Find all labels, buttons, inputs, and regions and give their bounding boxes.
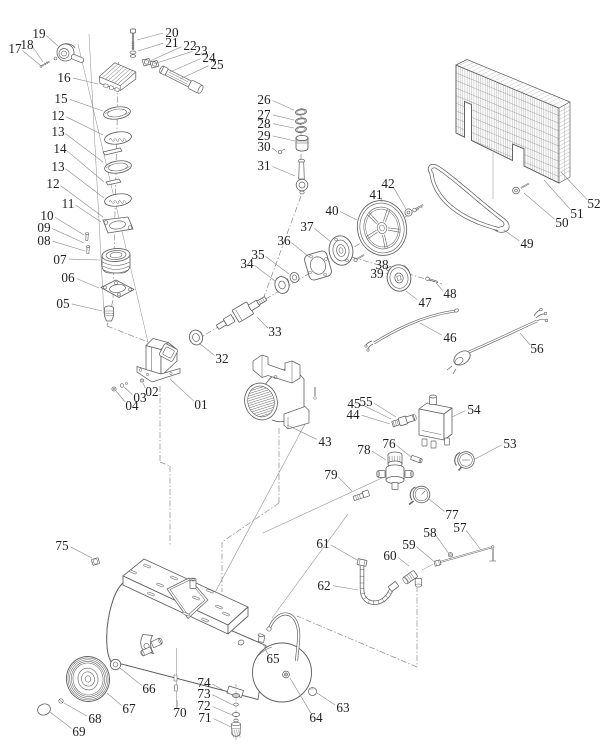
svg-text:74: 74 [197,675,211,690]
svg-text:04: 04 [125,398,139,413]
svg-text:65: 65 [266,651,280,666]
svg-text:60: 60 [383,548,397,563]
svg-text:70: 70 [173,705,187,720]
svg-text:15: 15 [54,91,68,106]
svg-text:30: 30 [257,139,271,154]
svg-text:35: 35 [251,247,265,262]
svg-text:08: 08 [37,233,51,248]
svg-text:13: 13 [51,124,65,139]
svg-text:02: 02 [145,384,158,399]
svg-text:36: 36 [277,233,291,248]
svg-text:69: 69 [72,724,86,739]
svg-text:76: 76 [382,436,396,451]
svg-text:48: 48 [443,286,457,301]
svg-text:62: 62 [317,578,330,593]
svg-text:54: 54 [467,402,481,417]
svg-text:51: 51 [570,206,583,221]
svg-text:50: 50 [555,215,569,230]
svg-text:47: 47 [418,295,432,310]
svg-text:42: 42 [381,176,394,191]
svg-text:11: 11 [62,196,75,211]
svg-text:25: 25 [210,57,224,72]
svg-text:79: 79 [324,467,338,482]
svg-text:68: 68 [88,711,102,726]
svg-text:06: 06 [61,270,75,285]
svg-text:49: 49 [520,236,534,251]
svg-text:57: 57 [453,520,467,535]
svg-text:64: 64 [309,710,323,725]
svg-text:31: 31 [257,158,270,173]
svg-text:59: 59 [402,537,416,552]
svg-text:01: 01 [194,397,207,412]
svg-text:46: 46 [443,330,457,345]
svg-text:39: 39 [370,266,384,281]
svg-text:19: 19 [32,26,46,41]
svg-text:52: 52 [587,196,600,211]
svg-text:40: 40 [325,203,339,218]
svg-text:21: 21 [165,35,178,50]
svg-text:33: 33 [268,324,282,339]
svg-text:63: 63 [336,700,350,715]
svg-text:53: 53 [503,436,517,451]
svg-text:56: 56 [530,341,544,356]
svg-text:43: 43 [318,434,332,449]
svg-text:16: 16 [57,70,71,85]
svg-text:75: 75 [55,538,69,553]
svg-text:67: 67 [122,701,136,716]
svg-text:32: 32 [215,351,228,366]
svg-text:12: 12 [51,108,64,123]
svg-text:07: 07 [53,252,67,267]
svg-text:05: 05 [56,296,70,311]
svg-text:58: 58 [423,525,437,540]
svg-text:12: 12 [46,176,59,191]
svg-text:26: 26 [257,92,271,107]
svg-text:66: 66 [142,681,156,696]
svg-text:13: 13 [51,159,65,174]
svg-text:61: 61 [316,536,329,551]
svg-text:55: 55 [359,394,373,409]
svg-text:10: 10 [40,208,54,223]
svg-text:78: 78 [357,442,371,457]
svg-text:14: 14 [53,141,67,156]
svg-text:77: 77 [445,507,459,522]
svg-text:37: 37 [300,219,314,234]
